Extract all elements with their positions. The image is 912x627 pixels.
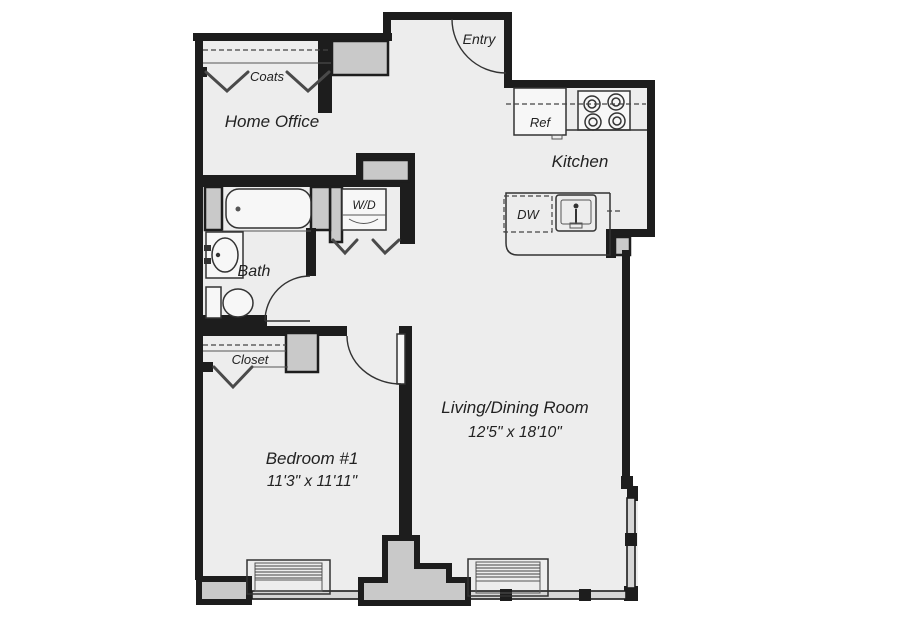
wall-segment (622, 250, 630, 480)
dw-label: DW (517, 207, 540, 222)
wall-segment (195, 33, 203, 580)
wall-segment (504, 12, 512, 88)
wd-label: W/D (352, 198, 376, 212)
structural-pier (311, 187, 330, 230)
living-dims-label: 12'5" x 18'10" (468, 424, 563, 441)
home-office-label: Home Office (225, 112, 319, 131)
window (467, 591, 626, 599)
faucet-handle (204, 258, 211, 264)
wall-segment (306, 228, 316, 276)
window-mullion (500, 589, 512, 601)
wall-segment (383, 12, 391, 41)
bath-label: Bath (238, 263, 271, 280)
window-mullion (625, 533, 637, 546)
structural-pier (199, 579, 249, 602)
bedroom-dims-label: 11'3" x 11'11" (267, 473, 359, 490)
structural-pier (330, 187, 342, 242)
kitchen-label: Kitchen (552, 152, 609, 171)
closet-label: Closet (232, 352, 270, 367)
floorplan-page: Coats Home Office Entry Ref Kitchen W/D … (0, 0, 912, 627)
kitchen-faucet (574, 204, 579, 209)
toilet-bowl (223, 289, 253, 317)
faucet-spout (216, 253, 220, 257)
wall-segment (400, 187, 415, 244)
window (252, 591, 362, 599)
wall-segment (647, 80, 655, 237)
bedroom-door-leaf (397, 334, 405, 384)
coats-label: Coats (250, 69, 284, 84)
ref-label: Ref (530, 115, 552, 130)
floorplan-svg: Coats Home Office Entry Ref Kitchen W/D … (0, 0, 912, 627)
structural-pier (332, 41, 388, 75)
wall-segment (383, 12, 512, 20)
wall-segment (504, 80, 655, 88)
structural-pier (205, 187, 222, 230)
tub-drain (236, 207, 241, 212)
faucet-handle (204, 245, 211, 251)
structural-pier (362, 160, 409, 181)
window-mullion (579, 589, 591, 601)
closet-jamb (196, 362, 213, 372)
wall-segment (195, 326, 347, 336)
toilet-tank (206, 287, 221, 318)
structural-pier (286, 333, 318, 372)
bedroom-label: Bedroom #1 (266, 449, 359, 468)
entry-label: Entry (463, 31, 497, 47)
living-label: Living/Dining Room (441, 398, 588, 417)
